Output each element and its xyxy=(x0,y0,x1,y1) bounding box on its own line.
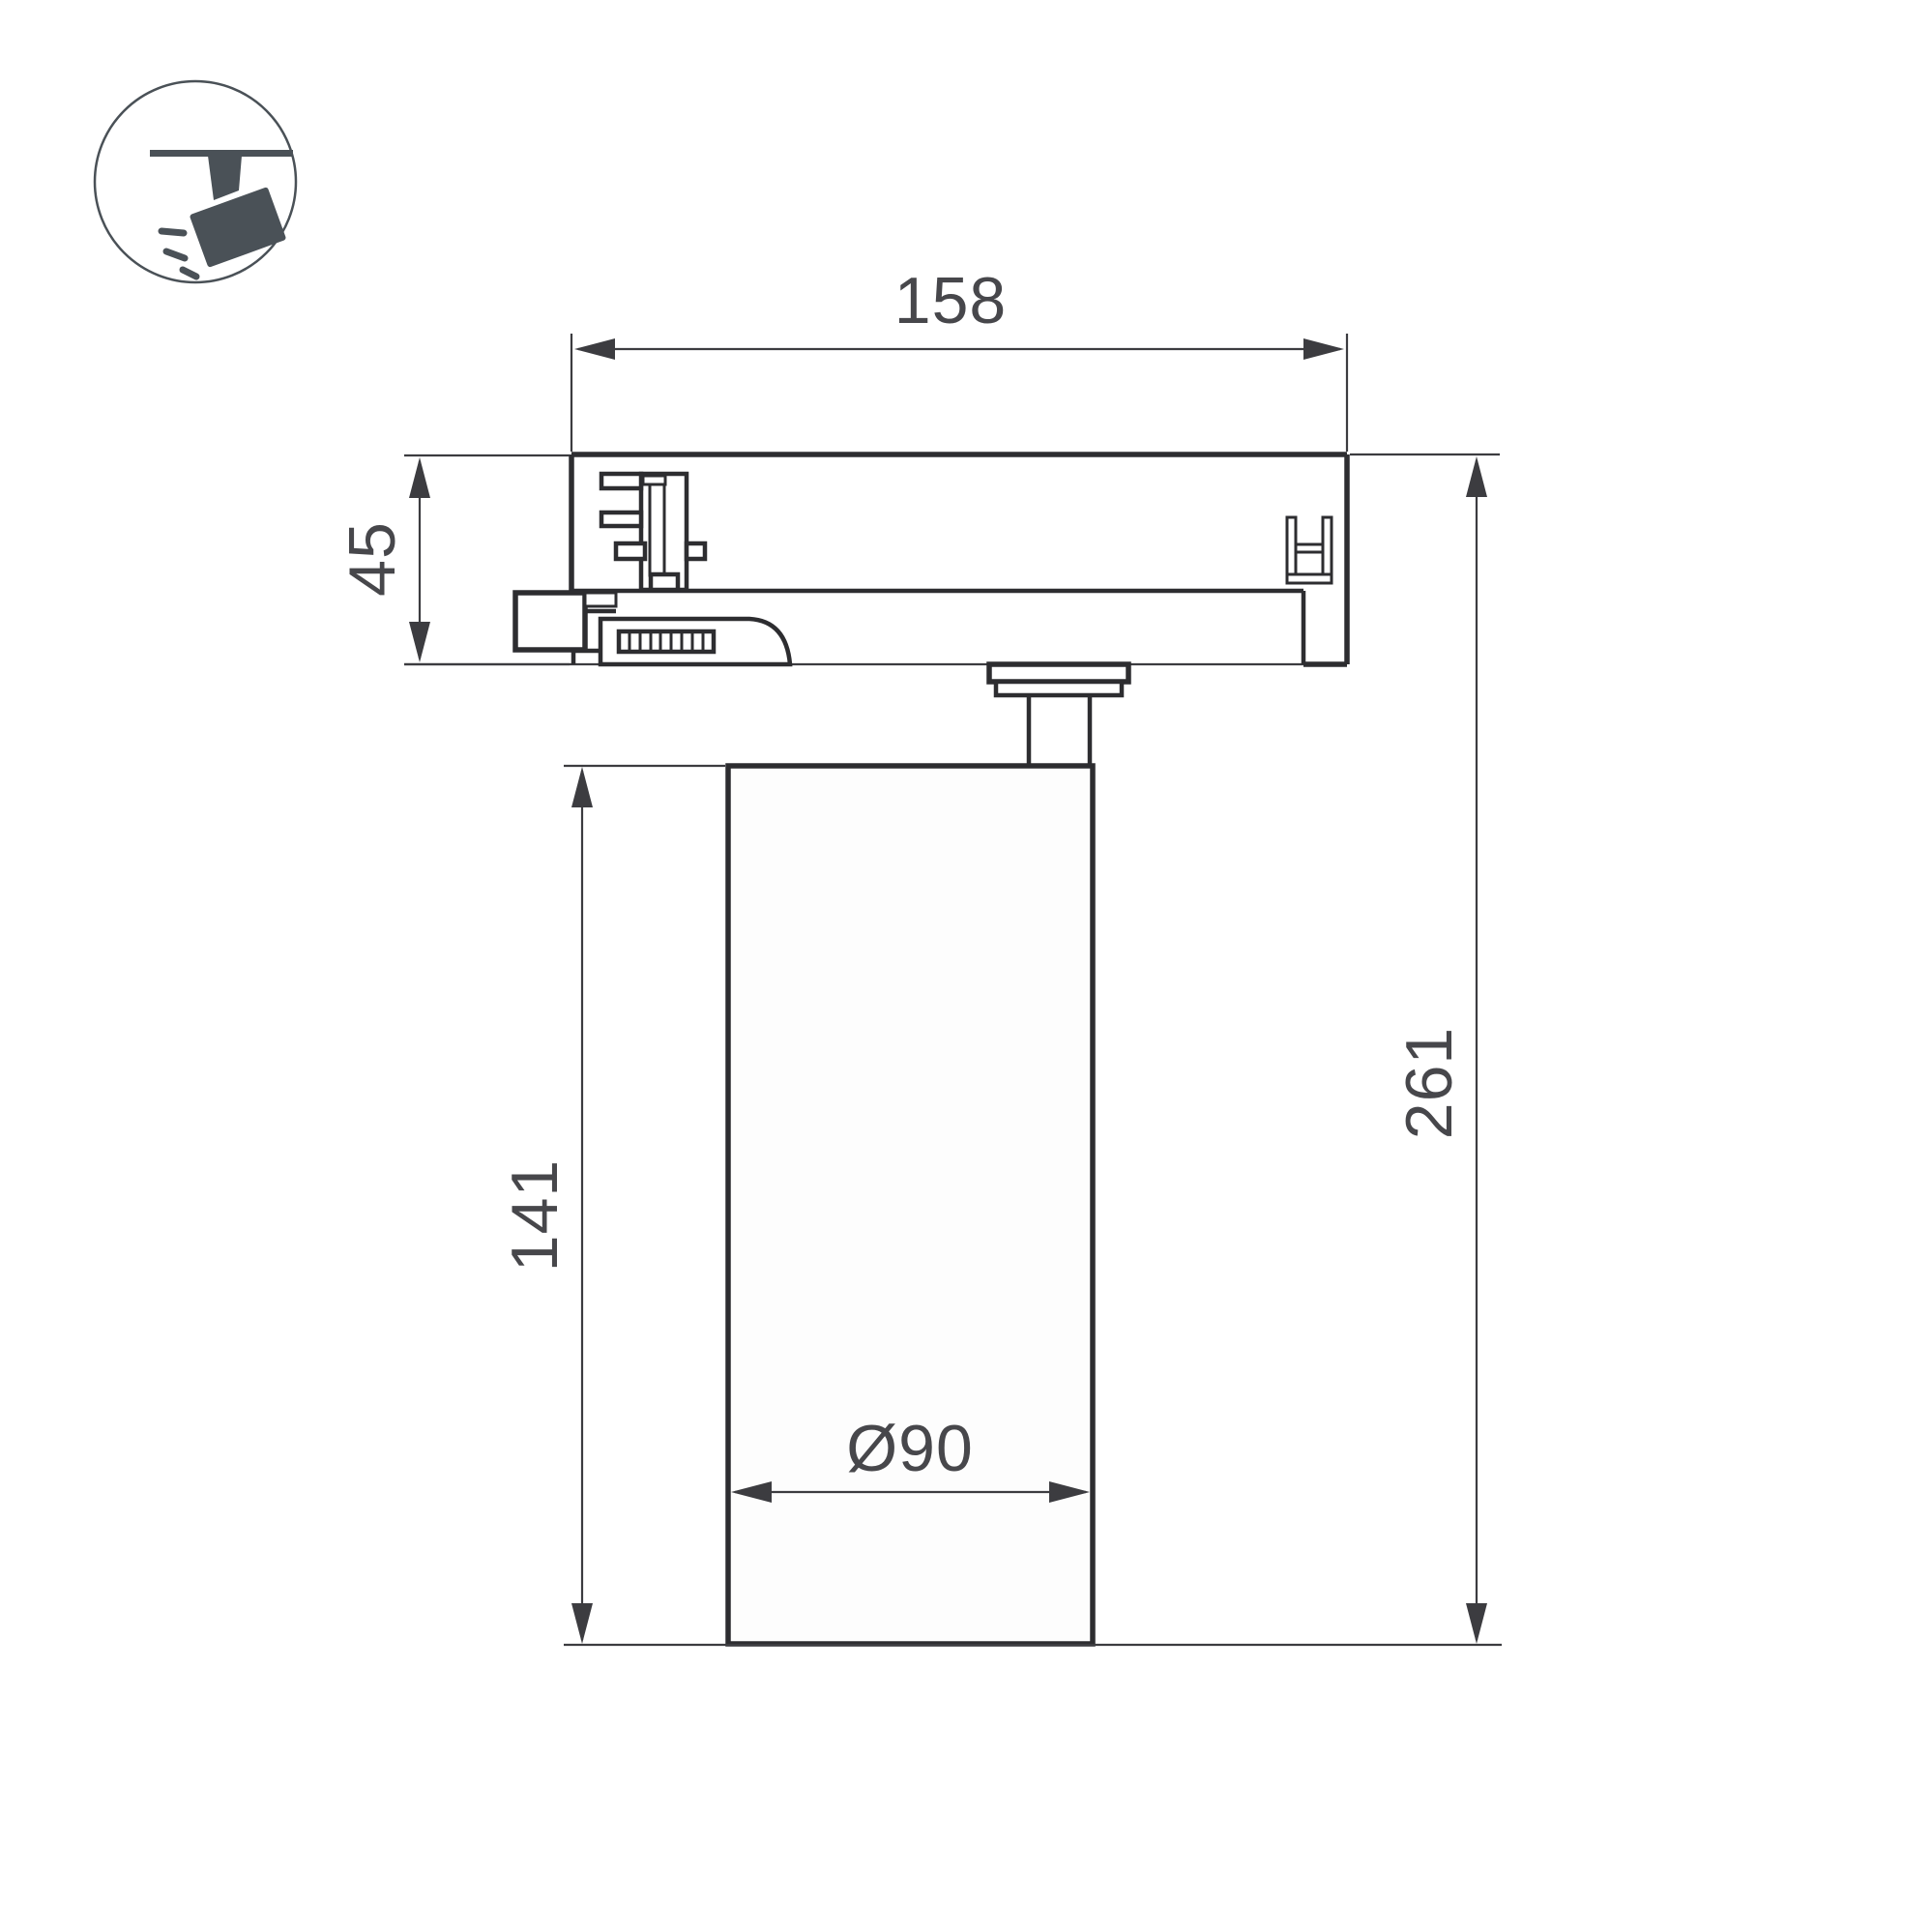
clamp-bracket xyxy=(1287,517,1332,583)
track-spotlight-icon xyxy=(95,81,296,282)
icon-light-ray xyxy=(161,231,184,233)
dimension-width: 158 xyxy=(571,264,1347,452)
arrow-down xyxy=(409,622,430,662)
dimension-label-total-height: 261 xyxy=(1392,1027,1466,1139)
clamp-cross-bar xyxy=(1296,544,1323,552)
arrow-down xyxy=(571,1603,593,1644)
arrow-right xyxy=(1303,338,1344,360)
contact-pin-assembly xyxy=(601,474,705,590)
swivel-joint xyxy=(989,664,1128,766)
track-adapter-side-view xyxy=(404,454,1347,664)
icon-circle xyxy=(95,81,296,282)
arrow-up xyxy=(571,767,593,807)
contact-foot xyxy=(651,574,678,590)
clamp-bottom-bar xyxy=(1287,574,1332,583)
contact-side-tab xyxy=(687,543,705,559)
dimension-label-width: 158 xyxy=(894,264,1007,337)
contact-pin-lower xyxy=(616,543,645,559)
lamp-body-cylinder xyxy=(728,766,1093,1644)
latch-clip xyxy=(585,593,616,606)
arrow-left xyxy=(574,338,615,360)
ribbed-slider xyxy=(619,631,714,652)
contact-pin-middle xyxy=(601,512,641,526)
arrow-up xyxy=(1466,456,1487,497)
dimension-label-adapter-height: 45 xyxy=(336,521,409,597)
contact-pin-upper xyxy=(601,474,641,488)
latch-step xyxy=(573,651,600,664)
joint-flange-upper xyxy=(989,664,1128,682)
arrow-down xyxy=(1466,1603,1487,1644)
slider-frame xyxy=(619,631,714,652)
dimension-body-height: 141 xyxy=(498,766,725,1644)
contact-rod xyxy=(650,484,664,575)
drawing-canvas: 158 45 141 261 Ø90 xyxy=(0,0,1932,1932)
dimension-label-diameter: Ø90 xyxy=(846,1412,974,1485)
dimension-total-height: 261 xyxy=(1350,454,1500,1644)
icon-ceiling-track-bar xyxy=(150,150,293,157)
arrow-up xyxy=(409,457,430,498)
dimension-label-body-height: 141 xyxy=(498,1159,571,1272)
latch-lever xyxy=(515,593,585,650)
joint-flange-lower xyxy=(996,682,1122,695)
